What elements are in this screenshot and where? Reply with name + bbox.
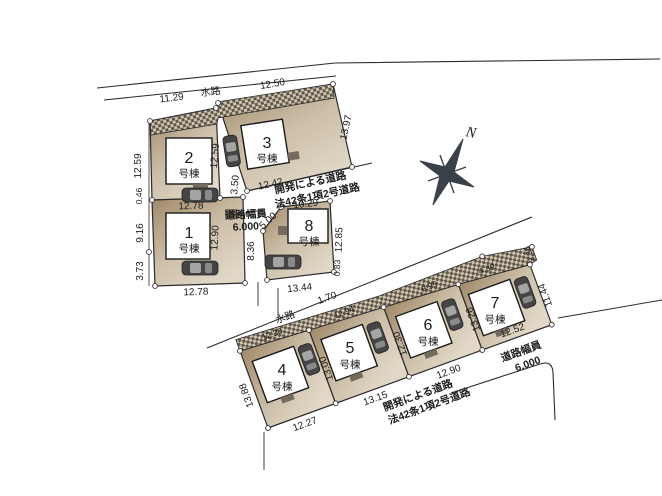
lot7-suffix: 号棟: [485, 313, 506, 326]
lot8-number: 8: [305, 218, 314, 235]
road-top-width-value: 6.000: [232, 220, 259, 233]
waterway-bottom-dim: 1.70: [316, 290, 338, 307]
lot1-suffix: 号棟: [179, 242, 200, 255]
lot5-number: 5: [346, 340, 355, 357]
lot1-dim-bottom: 12.78: [183, 287, 209, 299]
lot3-number: 3: [263, 135, 272, 152]
lot1-dim-left-top: 0.46: [134, 187, 144, 204]
lot3-dim-left: 3.50: [229, 174, 242, 195]
car-icon: [265, 255, 301, 269]
lot6-number: 6: [424, 317, 433, 334]
waterway-top-far-line: [97, 59, 660, 88]
lot1-dim-right: 12.90: [209, 225, 221, 251]
lot8-porch: [278, 226, 287, 235]
compass-north-label: N: [463, 124, 478, 142]
lot2-suffix: 号棟: [179, 167, 200, 180]
lot1-dim-left-lower: 3.73: [135, 261, 146, 281]
compass-rose: [420, 139, 474, 205]
lot1-number: 1: [185, 225, 194, 242]
lot8-dim-bottom-right: 0.83: [332, 259, 343, 276]
lot4-suffix: 号棟: [272, 380, 293, 393]
lot5-suffix: 号棟: [340, 358, 361, 371]
lot3-suffix: 号棟: [257, 152, 278, 165]
car-icon: [182, 261, 218, 275]
waterway-top-label: 水路: [200, 84, 221, 99]
lot8-dim-left: 8.36: [246, 241, 257, 261]
lot8-suffix: 号棟: [299, 235, 320, 248]
lot1-dim-top: 12.78: [178, 201, 204, 213]
site-plan-drawing: 11.29 水路 12.50 2 号棟 12.59 12.59 0.46 12.…: [0, 0, 662, 496]
lot7-number: 7: [491, 295, 500, 312]
lot4-number: 4: [278, 362, 287, 379]
road-edge-right: [558, 300, 662, 318]
waterway-top-dim-left: 11.29: [159, 92, 185, 106]
lot1-dim-left-upper: 9.16: [135, 223, 146, 243]
lot2-number: 2: [185, 150, 194, 167]
lot2-dim-left: 12.59: [133, 153, 144, 178]
lot8-dim-right: 12.85: [334, 227, 346, 253]
lot3-porch: [288, 151, 300, 161]
lot8-dim-bottom: 13.44: [287, 282, 313, 296]
lot2-dim-right: 12.59: [209, 142, 222, 168]
top-cluster: [147, 82, 372, 318]
site-plan-page: 11.29 水路 12.50 2 号棟 12.59 12.59 0.46 12.…: [0, 0, 662, 496]
waterway-top-dim-right: 12.50: [259, 77, 286, 92]
bottom-cluster: 水路 1.70 12.27 13.15 12.90 12.52 13.88 13…: [203, 217, 583, 477]
lot6-suffix: 号棟: [418, 335, 439, 348]
